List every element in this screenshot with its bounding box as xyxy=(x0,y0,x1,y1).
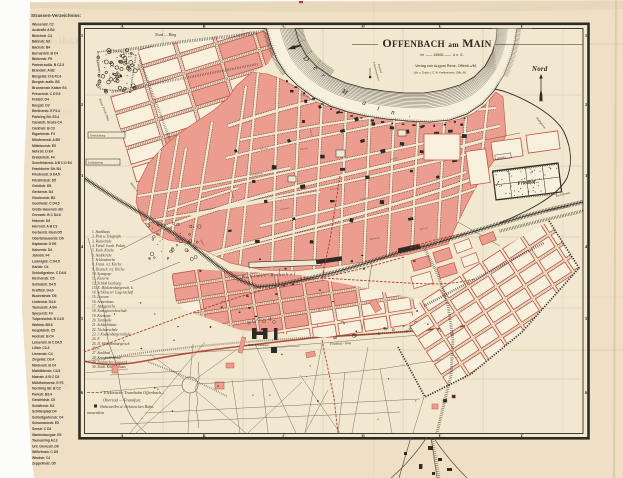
svg-text:6. Stadtkirche: 6. Stadtkirche xyxy=(92,253,112,257)
svg-text:Mittelseestr. E5: Mittelseestr. E5 xyxy=(32,144,56,148)
svg-text:Wiesenstr. C2: Wiesenstr. C2 xyxy=(32,22,54,26)
svg-text:Parkstr. B3.4: Parkstr. B3.4 xyxy=(32,392,52,396)
svg-text:Buchrainstr. D5: Buchrainstr. D5 xyxy=(32,294,57,298)
svg-text:17. Amtsgericht: 17. Amtsgericht xyxy=(92,305,116,309)
svg-text:Kirchenstr. C5: Kirchenstr. C5 xyxy=(32,277,54,281)
svg-text:24. F.: 24. F. xyxy=(92,337,100,341)
svg-text:Luisenstr. B C D4.5: Luisenstr. B C D4.5 xyxy=(32,340,62,344)
svg-text:Nehrstr. D E4: Nehrstr. D E4 xyxy=(32,150,53,154)
svg-text:Dreieichstr. F4: Dreieichstr. F4 xyxy=(32,155,55,159)
svg-text:Glockenstr. B4: Glockenstr. B4 xyxy=(32,196,55,200)
svg-text:Lilistr. C3.4: Lilistr. C3.4 xyxy=(32,346,50,350)
svg-text:5. Kath. Kirche: 5. Kath. Kirche xyxy=(92,249,114,253)
svg-text:8. Franz. ref. Kirche: 8. Franz. ref. Kirche xyxy=(92,263,122,267)
svg-text:Bernardstr. B C4: Bernardstr. B C4 xyxy=(32,51,58,55)
svg-text:Städt. Krankenhaus: Städt. Krankenhaus xyxy=(248,344,268,347)
svg-text:Löwenstr. C4: Löwenstr. C4 xyxy=(32,352,53,356)
svg-text:Mathildenstr. C4.5: Mathildenstr. C4.5 xyxy=(32,369,60,373)
svg-text:Canthstr. B C3: Canthstr. B C3 xyxy=(32,126,55,130)
svg-text:22. Töchterschule: 22. Töchterschule xyxy=(92,328,118,332)
svg-text:Krafftstr. D4.6: Krafftstr. D4.6 xyxy=(32,288,54,292)
svg-text:Bürgelstr. D E F2.4: Bürgelstr. D E F2.4 xyxy=(32,74,61,78)
svg-text:Hochstr. B C4: Hochstr. B C4 xyxy=(32,335,54,339)
svg-text:Lith. u. Druck v. C. W. Kreide: Lith. u. Druck v. C. W. Kreidenmann, Off… xyxy=(414,71,467,75)
svg-text:Schumannstr. E5: Schumannstr. E5 xyxy=(32,421,59,425)
svg-text:F: F xyxy=(521,24,524,29)
svg-text:Obertshauserstr. D6: Obertshauserstr. D6 xyxy=(32,236,64,240)
svg-text:Nordring Str. B C2: Nordring Str. B C2 xyxy=(32,387,61,391)
svg-text:3. Realschule: 3. Realschule xyxy=(92,239,112,243)
svg-text:C: C xyxy=(282,24,285,29)
svg-text:Herrnstr. A B C3: Herrnstr. A B C3 xyxy=(32,225,57,229)
svg-text:Goethestr. C D4.5: Goethestr. C D4.5 xyxy=(32,202,60,206)
svg-text:29. Städtisches Gaswerk: 29. Städtisches Gaswerk xyxy=(92,361,128,365)
svg-text:Kaiserstr. D4: Kaiserstr. D4 xyxy=(32,248,52,252)
svg-text:9. Deutsch. ref. Kirche: 9. Deutsch. ref. Kirche xyxy=(92,267,125,271)
svg-text:Jahnstr. F4: Jahnstr. F4 xyxy=(32,254,50,258)
svg-text:Ziegelstr. D3.4: Ziegelstr. D3.4 xyxy=(32,358,54,362)
svg-text:B: B xyxy=(202,434,205,439)
svg-text:Burgstr. außb. B3: Burgstr. außb. B3 xyxy=(32,80,60,84)
svg-text:Bachstr. B4: Bachstr. B4 xyxy=(32,46,50,50)
svg-text:11. Kaserne: 11. Kaserne xyxy=(92,277,110,281)
svg-text:Unt. Grenzstr. D6: Unt. Grenzstr. D6 xyxy=(32,444,59,448)
svg-text:Dreieichweg: Dreieichweg xyxy=(89,134,106,138)
svg-text:Gerberstr. Klein D5: Gerberstr. Klein D5 xyxy=(32,231,62,235)
svg-text:B: B xyxy=(202,24,205,29)
svg-text:Zeppelinstr. D5: Zeppelinstr. D5 xyxy=(32,462,56,466)
svg-text:Friedenstr. D E4.5: Friedenstr. D E4.5 xyxy=(32,173,60,177)
svg-text:Hebestr. D3: Hebestr. D3 xyxy=(32,219,50,223)
svg-text:Starkenburgstr. E5: Starkenburgstr. E5 xyxy=(32,433,61,437)
svg-text:Karlstr. C4: Karlstr. C4 xyxy=(32,265,49,269)
svg-text:Eigartenstr. F4: Eigartenstr. F4 xyxy=(32,132,55,136)
svg-text:Waldstr. B5.6: Waldstr. B5.6 xyxy=(32,323,53,327)
svg-text:4. Fürstl. Isenb. Palais: 4. Fürstl. Isenb. Palais xyxy=(92,244,126,248)
svg-text:ausserdem: ausserdem xyxy=(87,410,104,415)
svg-text:Grenzstr. B C D4.6: Grenzstr. B C D4.6 xyxy=(32,213,61,217)
svg-text:F: F xyxy=(521,434,524,439)
svg-text:Bahnstr. E3: Bahnstr. E3 xyxy=(32,40,50,44)
svg-text:E: E xyxy=(438,434,441,439)
svg-text:Ludwigsweg: Ludwigsweg xyxy=(87,161,104,165)
svg-text:E: E xyxy=(438,24,441,29)
svg-text:Feldstr. D4: Feldstr. D4 xyxy=(32,98,49,102)
svg-text:Haltestellen d. elektrischen B: Haltestellen d. elektrischen Bahn. xyxy=(99,404,154,409)
svg-text:Parkring Str. E3.4: Parkring Str. E3.4 xyxy=(32,115,59,119)
svg-text:Nord — Ring: Nord — Ring xyxy=(154,32,176,37)
svg-text:C: C xyxy=(282,434,285,439)
svg-text:Austraße A B2: Austraße A B2 xyxy=(32,28,55,32)
svg-text:Nord: Nord xyxy=(531,66,548,73)
svg-text:27. Stadtbad: 27. Stadtbad xyxy=(92,351,110,355)
svg-text:Geleitstr. D5: Geleitstr. D5 xyxy=(32,184,51,188)
svg-text:16. Armenhaus: 16. Armenhaus xyxy=(92,300,114,304)
svg-text:Große Hasenstr. B3: Große Hasenstr. B3 xyxy=(32,207,63,211)
svg-text:10. Synagoge: 10. Synagoge xyxy=(92,272,112,276)
svg-text:Taunusstr. A B4: Taunusstr. A B4 xyxy=(32,306,57,310)
svg-text:Mainstr. A B C D3: Mainstr. A B C D3 xyxy=(32,375,59,379)
svg-text:Ludwigstr. C D4.5: Ludwigstr. C D4.5 xyxy=(32,259,60,263)
svg-text:Wilhelmstr. C D5: Wilhelmstr. C D5 xyxy=(32,450,58,454)
svg-text:Marienstr. B C4: Marienstr. B C4 xyxy=(32,363,56,367)
svg-text:Windstr. C4: Windstr. C4 xyxy=(32,456,50,460)
svg-text:Mindenerstr. A B5: Mindenerstr. A B5 xyxy=(32,138,60,142)
svg-text:Gerberstr. D4: Gerberstr. D4 xyxy=(32,190,53,194)
svg-text:Tulpenhofstr. B C4.5: Tulpenhofstr. B C4.5 xyxy=(32,317,64,321)
svg-text:Schloßgartenstr. C4: Schloßgartenstr. C4 xyxy=(32,415,63,419)
svg-text:Verlag von August Renz, Offenb: Verlag von August Renz, Offenb.a/M. xyxy=(415,64,477,68)
svg-text:Taunusring A2.3: Taunusring A2.3 xyxy=(32,439,58,443)
svg-text:15. Lyceum: 15. Lyceum xyxy=(92,295,109,299)
svg-text:Frankfurter Str. B4: Frankfurter Str. B4 xyxy=(32,167,61,171)
svg-text:Schäferstr. D4: Schäferstr. D4 xyxy=(32,404,54,408)
svg-text:im —— 1/8000 —— d. n. G.: im —— 1/8000 —— d. n. G. xyxy=(420,53,463,57)
svg-text:2. Post u. Telegraph: 2. Post u. Telegraph xyxy=(92,235,121,239)
svg-text:Geisfeldstr. C5: Geisfeldstr. C5 xyxy=(32,398,55,402)
svg-text:Brunnenstr. Kaiser E4: Brunnenstr. Kaiser E4 xyxy=(32,86,67,90)
svg-text:7. Schlosskirche: 7. Schlosskirche xyxy=(92,258,116,262)
svg-text:Schloßgraben. C D4.6: Schloßgraben. C D4.6 xyxy=(32,271,66,275)
svg-text:Elektrische Trambahn Offenbach: Elektrische Trambahn Offenbach— xyxy=(103,390,165,395)
svg-text:Oberrad — Frankfurt.: Oberrad — Frankfurt. xyxy=(103,398,142,403)
svg-text:Kaplanstr. D E6: Kaplanstr. D E6 xyxy=(32,242,56,246)
svg-text:OFFENBACH am MAIN: OFFENBACH am MAIN xyxy=(382,36,491,50)
svg-text:Parkstr.außb. B C2.3: Parkstr.außb. B C2.3 xyxy=(32,63,64,67)
svg-text:Lindenstr. D4.6: Lindenstr. D4.6 xyxy=(32,300,56,304)
svg-text:12. Schloß Isenburg: 12. Schloß Isenburg xyxy=(92,281,121,285)
svg-text:Canalstr. Große C4: Canalstr. Große C4 xyxy=(32,121,62,125)
svg-text:Speyerstr. F3: Speyerstr. F3 xyxy=(32,311,53,315)
svg-text:14. Schlösserer Liegenschaft: 14. Schlösserer Liegenschaft xyxy=(92,291,134,295)
svg-text:Mühlheimerstr. E F3: Mühlheimerstr. E F3 xyxy=(32,381,64,385)
svg-text:Schillerplatz D4: Schillerplatz D4 xyxy=(32,410,57,414)
svg-text:Seestr. C D4: Seestr. C D4 xyxy=(32,427,51,431)
svg-text:Bieberstr. F5: Bieberstr. F5 xyxy=(32,57,52,61)
svg-text:20. Turnhalle: 20. Turnhalle xyxy=(92,319,112,323)
svg-text:19. Kreisamt: 19. Kreisamt xyxy=(92,314,111,318)
svg-text:Prinzenstr. C D E4: Prinzenstr. C D E4 xyxy=(32,92,61,96)
svg-text:Hospitalstr. C5: Hospitalstr. C5 xyxy=(32,329,55,333)
svg-text:Friedrichstr. D5: Friedrichstr. D5 xyxy=(32,179,56,183)
svg-text:30. Städt. Krankenhaus: 30. Städt. Krankenhaus xyxy=(92,365,126,369)
svg-text:Bleichstr. C3: Bleichstr. C3 xyxy=(32,34,52,38)
svg-text:13. E. Mädchenbürgersch. k.: 13. E. Mädchenbürgersch. k. xyxy=(92,286,134,290)
svg-text:Bergstr. D3: Bergstr. D3 xyxy=(32,103,50,107)
svg-text:28. Kriegerdenkmal: 28. Kriegerdenkmal xyxy=(92,356,121,360)
svg-text:18. Kunstgewerbeschule: 18. Kunstgewerbeschule xyxy=(92,309,128,313)
svg-text:Schloßstr. D4.5: Schloßstr. D4.5 xyxy=(32,283,56,287)
svg-text:Strassen-Verzeichniss:: Strassen-Verzeichniss: xyxy=(31,13,82,18)
svg-text:Berlinerstr. E F3.4: Berlinerstr. E F3.4 xyxy=(32,109,60,113)
svg-text:1. Stadthaus: 1. Stadthaus xyxy=(92,230,110,234)
svg-text:Brandstr. A B2: Brandstr. A B2 xyxy=(32,69,55,73)
svg-text:Senefelderstr. A B C D E4: Senefelderstr. A B C D E4 xyxy=(32,161,72,165)
svg-text:23. I. Knabenbürgerschule: 23. I. Knabenbürgerschule xyxy=(92,333,131,337)
svg-text:21. Schlachthaus: 21. Schlachthaus xyxy=(92,323,117,327)
